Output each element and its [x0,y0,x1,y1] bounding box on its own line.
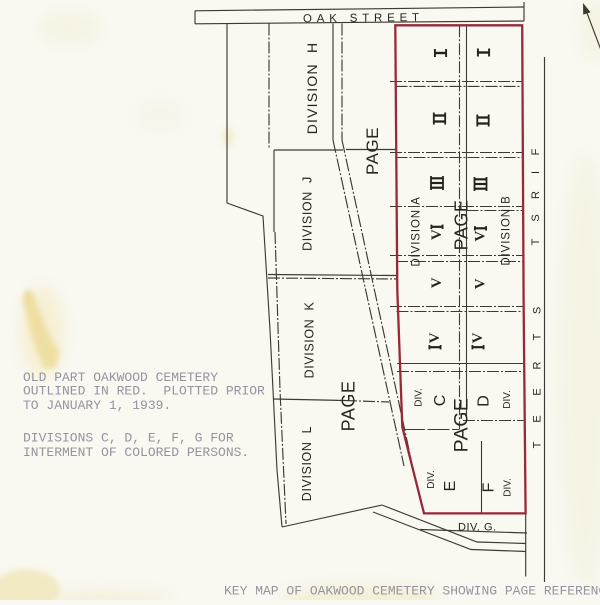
svg-text:DIV.: DIV. [503,478,514,497]
svg-text:R: R [532,361,544,369]
svg-text:DIVISION H: DIVISION H [304,42,320,135]
svg-text:I: I [530,171,542,174]
svg-text:DIV. G.: DIV. G. [458,522,497,534]
svg-text:V: V [473,231,489,242]
svg-text:DIVISIONS C, D, E, F, G FOR: DIVISIONS C, D, E, F, G FOR [23,431,234,446]
svg-text:T: T [532,333,544,340]
svg-text:V: V [429,229,445,240]
svg-text:PAGE: PAGE [363,127,382,175]
svg-text:DIVISION J: DIVISION J [301,176,315,251]
svg-text:PAGE: PAGE [451,398,473,453]
svg-text:DIV.: DIV. [426,470,437,489]
svg-text:V: V [427,332,443,343]
svg-text:TO JANUARY 1, 1939.: TO JANUARY 1, 1939. [23,398,171,413]
svg-text:DIV.: DIV. [502,390,513,409]
svg-text:T: T [530,238,542,245]
svg-text:S: S [530,214,542,221]
svg-text:V: V [429,277,445,288]
svg-text:F: F [481,482,498,492]
svg-text:INTERMENT OF COLORED PERSONS.: INTERMENT OF COLORED PERSONS. [23,445,249,460]
svg-text:T: T [532,441,544,448]
svg-text:PAGE: PAGE [452,200,472,251]
svg-text:OUTLINED IN RED. PLOTTED PRIO: OUTLINED IN RED. PLOTTED PRIOR [23,384,265,399]
svg-text:V: V [470,332,486,343]
svg-text:DIVISION L: DIVISION L [300,426,314,501]
svg-text:OAK STREET: OAK STREET [303,12,424,25]
svg-text:F: F [530,148,542,155]
svg-text:PAGE: PAGE [339,381,359,432]
svg-text:S: S [532,307,544,314]
svg-text:E: E [442,481,459,492]
svg-text:R: R [530,191,542,199]
svg-text:DIV.: DIV. [414,388,425,407]
svg-text:E: E [532,415,544,422]
svg-text:DIVISION A: DIVISION A [411,196,423,266]
svg-text:D: D [476,395,493,407]
svg-text:E: E [532,388,544,395]
svg-text:DIVISION B: DIVISION B [501,195,513,265]
svg-text:DIVISION K: DIVISION K [303,302,317,379]
svg-text:V: V [473,278,489,289]
svg-text:C: C [432,395,449,407]
svg-text:KEY MAP OF OAKWOOD CEMETERY SH: KEY MAP OF OAKWOOD CEMETERY SHOWING PAGE… [224,584,600,599]
